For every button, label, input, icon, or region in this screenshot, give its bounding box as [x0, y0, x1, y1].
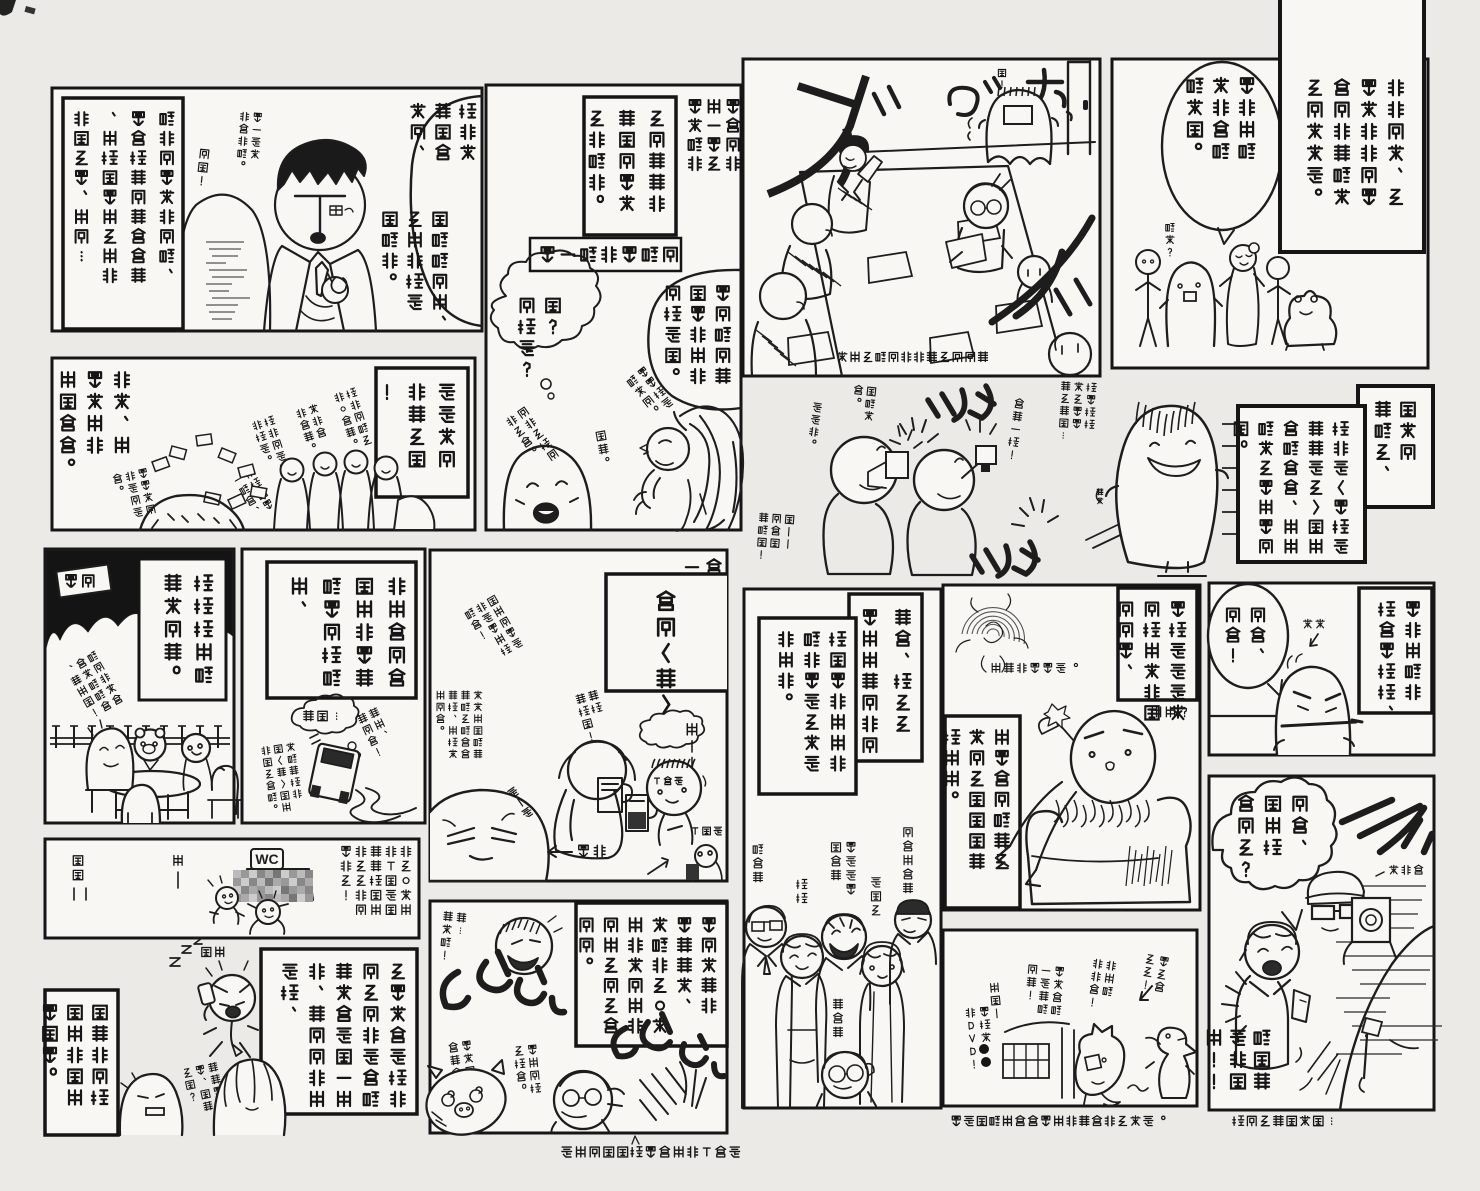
- svg-text:WC: WC: [255, 851, 278, 867]
